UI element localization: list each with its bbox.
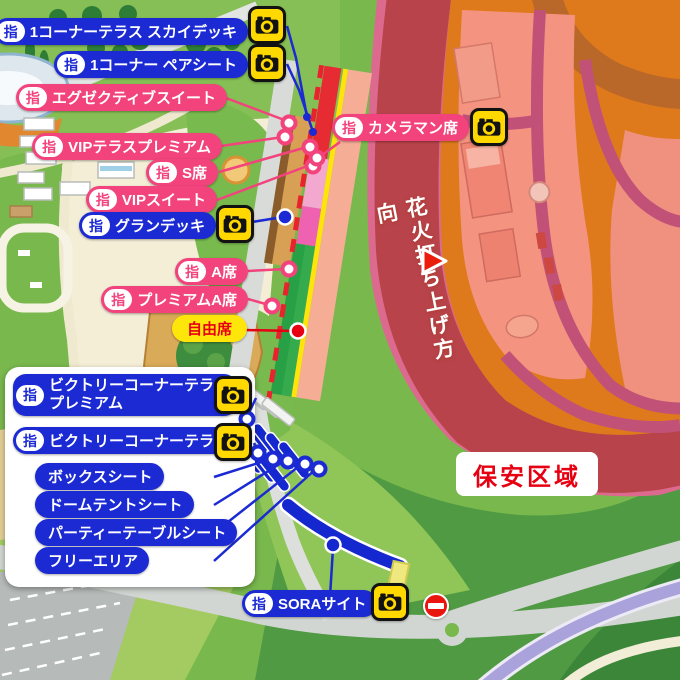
- label-box-seat: ボックスシート: [35, 463, 164, 490]
- shitei-badge: 指: [0, 21, 25, 42]
- label-text: フリーエリア: [48, 550, 138, 571]
- security-zone-label: 保安区域: [456, 452, 598, 496]
- label-premium-a-seat: 指 プレミアムA席: [101, 286, 248, 313]
- shitei-badge: 指: [104, 289, 132, 310]
- shitei-badge: 指: [19, 87, 47, 108]
- label-party-table-seat: パーティーテーブルシート: [35, 519, 237, 546]
- label-text: 1コーナー ペアシート: [90, 54, 237, 75]
- label-text: エグゼクティブスイート: [52, 87, 216, 108]
- camera-icon: [214, 376, 252, 414]
- camera-icon: [248, 44, 286, 82]
- label-text: 1コーナーテラス スカイデッキ: [30, 21, 237, 42]
- label-text: カメラマン席: [368, 117, 458, 138]
- shitei-badge: 指: [82, 215, 110, 236]
- label-victory-corner-terrace-premium: 指 ビクトリーコーナーテラス プレミアム: [13, 374, 237, 416]
- shitei-badge: 指: [16, 430, 44, 451]
- camera-icon: [371, 583, 409, 621]
- shitei-badge: 指: [335, 117, 363, 138]
- label-text: SORAサイト: [278, 593, 366, 614]
- label-text: パーティーテーブルシート: [48, 522, 226, 543]
- shitei-badge: 指: [245, 593, 273, 614]
- label-cameraman-seat: 指 カメラマン席: [332, 114, 469, 141]
- label-sora-site: 指 SORAサイト: [242, 590, 377, 617]
- label-text: ボックスシート: [48, 466, 153, 487]
- camera-icon: [248, 6, 286, 44]
- camera-icon: [216, 205, 254, 243]
- label-text: プレミアムA席: [137, 289, 237, 310]
- triangle-right-icon: [420, 246, 450, 276]
- label-vip-suite: 指 VIPスイート: [86, 186, 217, 213]
- label-text: A席: [211, 261, 237, 282]
- label-text: VIPテラスプレミアム: [68, 136, 211, 157]
- label-text: グランデッキ: [115, 215, 205, 236]
- label-text: S席: [182, 162, 207, 183]
- shitei-badge: 指: [149, 162, 177, 183]
- label-text: ビクトリーコーナーテラス: [49, 377, 229, 395]
- shitei-badge: 指: [89, 189, 117, 210]
- label-1corner-pair-seat: 指 1コーナー ペアシート: [54, 51, 248, 78]
- label-s-seat: 指 S席: [146, 159, 218, 186]
- label-executive-suite: 指 エグゼクティブスイート: [16, 84, 227, 111]
- label-text: VIPスイート: [122, 189, 206, 210]
- camera-icon: [470, 108, 508, 146]
- label-victory-corner-terrace: 指 ビクトリーコーナーテラス: [13, 427, 240, 454]
- label-a-seat: 指 A席: [175, 258, 248, 285]
- label-text: ビクトリーコーナーテラス: [49, 430, 229, 451]
- shitei-badge: 指: [57, 54, 85, 75]
- label-free-area: フリーエリア: [35, 547, 149, 574]
- camera-icon: [214, 423, 252, 461]
- label-free-seat: 自由席: [172, 315, 247, 342]
- venue-seating-map: { "labels": [ {"badge":"指","text":"1コーナー…: [0, 0, 680, 680]
- no-entry-icon: [423, 593, 449, 619]
- label-vip-terrace-premium: 指 VIPテラスプレミアム: [32, 133, 222, 160]
- shitei-badge: 指: [16, 385, 44, 406]
- shitei-badge: 指: [178, 261, 206, 282]
- label-1corner-terrace-sky-deck: 指 1コーナーテラス スカイデッキ: [0, 18, 248, 45]
- label-grand-deck: 指 グランデッキ: [79, 212, 216, 239]
- label-text: ドームテントシート: [48, 494, 183, 515]
- label-text: 自由席: [187, 318, 232, 339]
- label-text-line2: プレミアム: [49, 395, 229, 413]
- label-dome-tent-seat: ドームテントシート: [35, 491, 194, 518]
- shitei-badge: 指: [35, 136, 63, 157]
